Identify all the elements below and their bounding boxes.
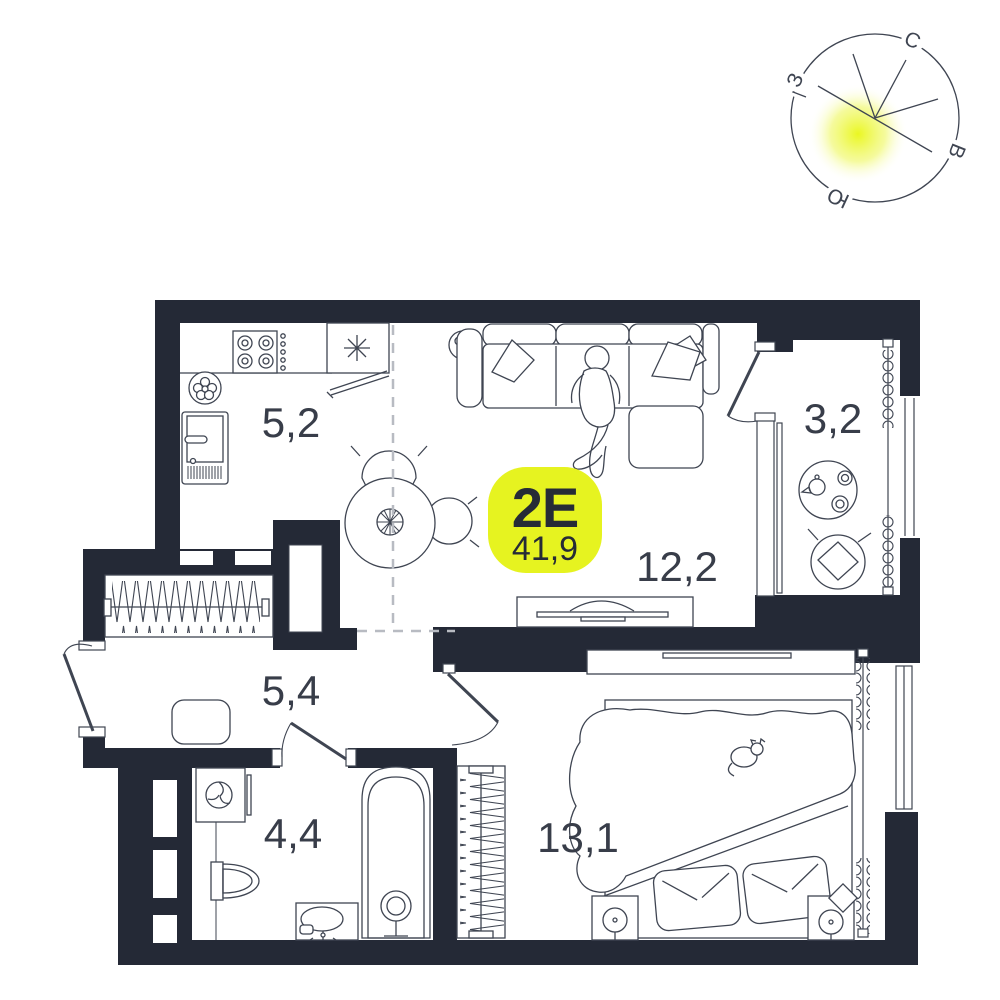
bed-pillow-icon xyxy=(653,864,742,931)
bathroom-sink-icon xyxy=(296,903,358,940)
tv-console-living xyxy=(517,597,693,627)
living-loggia-window xyxy=(757,420,782,596)
fridge-icon xyxy=(182,412,228,484)
bedroom-furniture xyxy=(457,650,857,940)
entrance-door xyxy=(64,641,105,737)
bedroom-door xyxy=(443,664,498,745)
compass-rose: С В Ю З xyxy=(782,27,969,213)
unit-area-label: 41,9 xyxy=(512,530,578,568)
bedroom-wardrobe-icon xyxy=(457,766,505,938)
open-cabinet-door-icon xyxy=(327,371,389,398)
hall-ottoman-icon xyxy=(172,700,230,744)
bathtub-icon xyxy=(362,767,430,938)
dining-table-icon xyxy=(345,478,435,568)
kitchen-sink-icon xyxy=(327,323,389,373)
loggia-furniture xyxy=(799,461,871,589)
tv-console-bedroom xyxy=(587,650,855,674)
bedroom-area-label: 13,1 xyxy=(537,814,619,861)
plant-pot-icon xyxy=(189,372,221,404)
toilet-icon xyxy=(211,862,259,900)
compass-east-label: В xyxy=(943,140,970,162)
curtain-coil-icon xyxy=(881,515,895,593)
loggia-outer-window xyxy=(900,396,920,538)
bathroom-door xyxy=(272,723,356,766)
flower-centerpiece-icon xyxy=(377,509,403,535)
curtain-coil-icon xyxy=(856,858,870,934)
kitchen-area-label: 5,2 xyxy=(262,399,320,446)
hall-wardrobe-icon xyxy=(104,575,273,637)
bathroom-area-label: 4,4 xyxy=(264,810,322,857)
sun-glow xyxy=(808,84,908,184)
bedroom-window xyxy=(885,663,918,812)
living-area-label: 12,2 xyxy=(636,543,718,590)
hall-furniture xyxy=(104,575,273,744)
nightstand-left xyxy=(592,896,638,940)
curtain-coil-icon xyxy=(856,658,870,730)
floor-plan-page: 5,2 12,2 3,2 5,4 4,4 13,1 2Е 41,9 С В Ю … xyxy=(0,0,1000,1000)
stove-icon xyxy=(180,331,332,373)
loggia-armchair-icon xyxy=(808,529,871,589)
unit-badge: 2Е 41,9 xyxy=(488,467,602,573)
loggia-area-label: 3,2 xyxy=(804,395,862,442)
hall-area-label: 5,4 xyxy=(262,667,320,714)
compass-north-label: С xyxy=(900,27,923,54)
loggia-door xyxy=(728,342,775,422)
loggia-table-icon xyxy=(799,461,857,519)
curtain-coil-icon xyxy=(881,350,895,428)
floor-plan: 5,2 12,2 3,2 5,4 4,4 13,1 2Е 41,9 С В Ю … xyxy=(0,0,1000,1000)
washing-machine-icon xyxy=(196,768,251,940)
